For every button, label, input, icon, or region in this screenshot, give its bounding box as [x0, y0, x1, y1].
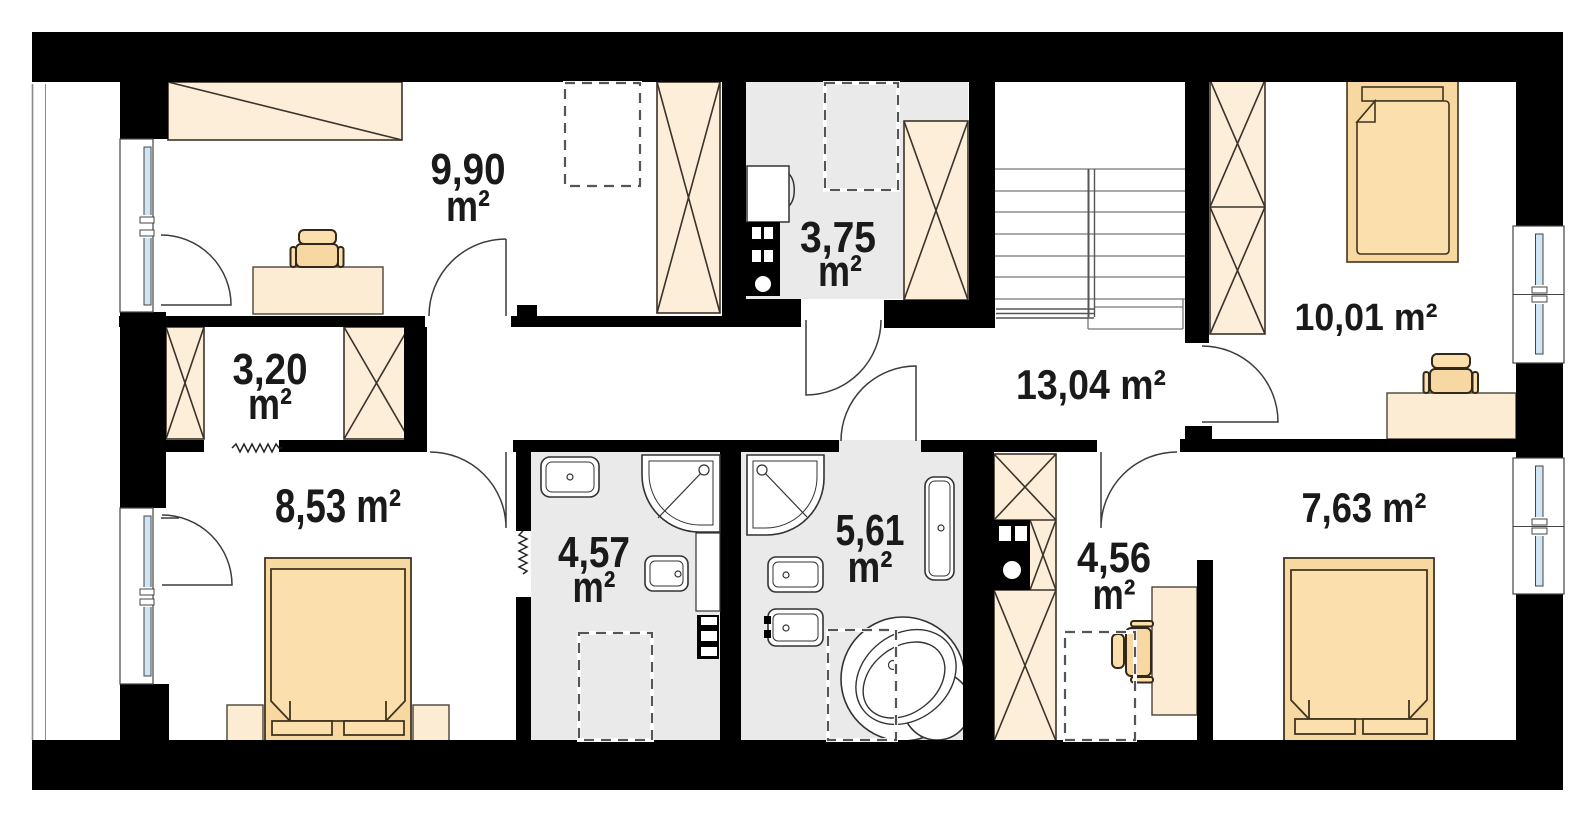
svg-text:7,63 m²: 7,63 m² [1302, 484, 1427, 531]
svg-text:m²: m² [446, 182, 490, 231]
svg-text:m²: m² [248, 380, 292, 429]
svg-text:m²: m² [818, 247, 862, 296]
svg-text:m²: m² [1093, 571, 1136, 619]
svg-text:13,04 m²: 13,04 m² [1016, 361, 1166, 408]
svg-text:m²: m² [848, 543, 893, 592]
svg-text:10,01 m²: 10,01 m² [1295, 297, 1438, 339]
svg-text:8,53 m²: 8,53 m² [275, 479, 401, 532]
svg-text:m²: m² [573, 563, 616, 612]
